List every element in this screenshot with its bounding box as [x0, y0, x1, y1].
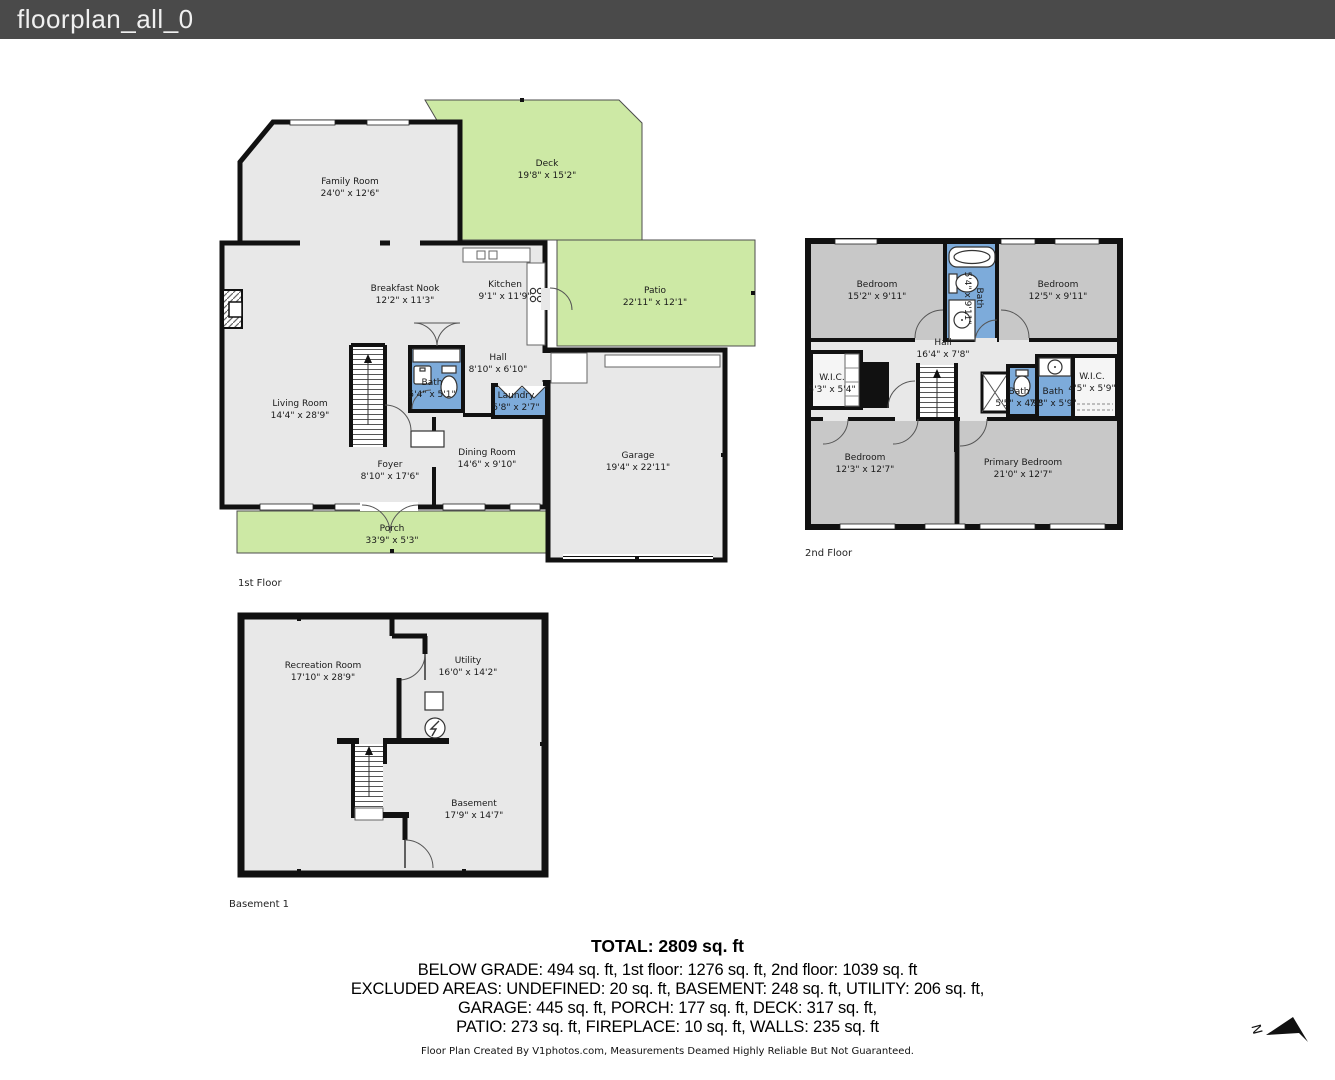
room-label-breakfast-nook: Breakfast Nook12'2" x 11'3" [371, 283, 440, 307]
window [443, 504, 485, 510]
room-label-bedroom-bl: Bedroom12'3" x 12'7" [836, 452, 895, 476]
room-label-utility: Utility16'0" x 14'2" [439, 655, 498, 679]
toilet-icon [1016, 370, 1028, 376]
area-summary: TOTAL: 2809 sq. ft BELOW GRADE: 494 sq. … [0, 936, 1335, 1037]
total-area: TOTAL: 2809 sq. ft [0, 936, 1335, 957]
north-arrow-icon [1235, 1005, 1325, 1065]
floor-caption-basement: Basement 1 [229, 899, 289, 910]
basement-plan [237, 612, 549, 878]
room-label-patio: Patio22'11" x 12'1" [623, 285, 687, 309]
room-label-family-room: Family Room24'0" x 12'6" [321, 176, 380, 200]
summary-line-4: PATIO: 273 sq. ft, FIREPLACE: 10 sq. ft,… [0, 1018, 1335, 1037]
wall-mass [863, 362, 889, 408]
room-label-porch: Porch33'9" x 5'3" [366, 523, 419, 547]
summary-line-2: EXCLUDED AREAS: UNDEFINED: 20 sq. ft, BA… [0, 980, 1335, 999]
electrical-panel-icon [425, 718, 445, 738]
room-label-wic-right: W.I.C.4'5" x 5'9" [1068, 371, 1115, 395]
room-label-recreation-room: Recreation Room17'10" x 28'9" [285, 660, 362, 684]
floor-caption-1st: 1st Floor [238, 578, 282, 589]
toilet-icon [442, 366, 456, 373]
room-label-dining-room: Dining Room14'6" x 9'10" [458, 447, 517, 471]
room-label-bedroom-tl: Bedroom15'2" x 9'11" [848, 279, 907, 303]
summary-line-1: BELOW GRADE: 494 sq. ft, 1st floor: 1276… [0, 961, 1335, 980]
disclaimer-text: Floor Plan Created By V1photos.com, Meas… [0, 1046, 1335, 1057]
room-label-foyer: Foyer8'10" x 17'6" [361, 459, 420, 483]
window [260, 504, 313, 510]
garage-landing [551, 353, 587, 383]
vanity [413, 349, 460, 362]
summary-line-3: GARAGE: 445 sq. ft, PORCH: 177 sq. ft, D… [0, 999, 1335, 1018]
room-label-basement: Basement17'9" x 14'7" [445, 798, 504, 822]
window [1050, 524, 1105, 529]
electrical-box [425, 692, 443, 710]
floor-caption-2nd: 2nd Floor [805, 548, 852, 559]
room-label-laundry: Laundry5'8" x 2'7" [492, 390, 539, 414]
window [840, 524, 895, 529]
window [290, 120, 335, 125]
room-label-hall-1: Hall8'10" x 6'10" [469, 352, 528, 376]
room-label-deck: Deck19'8" x 15'2" [518, 158, 577, 182]
room-label-bath-center: Bath5'4" x 9'11" [961, 272, 985, 325]
closet [411, 431, 444, 447]
stair-landing [355, 808, 383, 820]
first-floor-plan [215, 95, 765, 565]
title-bar: floorplan_all_0 [0, 0, 1335, 39]
window [510, 504, 540, 510]
room-label-wic-left: W.I.C.5'3" x 5'4" [808, 372, 855, 396]
window [925, 524, 965, 529]
basement-shell [241, 616, 545, 874]
floorplan-viewer: floorplan_all_0 [0, 0, 1335, 1080]
window [835, 239, 877, 244]
room-label-primary-bedroom: Primary Bedroom21'0" x 12'7" [984, 457, 1062, 481]
window [367, 120, 409, 125]
room-label-bath-1: Bath5'4" x 5'1" [408, 377, 455, 401]
window [980, 524, 1035, 529]
room-label-living-room: Living Room14'4" x 28'9" [271, 398, 330, 422]
window [1055, 239, 1099, 244]
window [1001, 239, 1035, 244]
page-title: floorplan_all_0 [17, 4, 194, 35]
room-label-hall-2: Hall16'4" x 7'8" [917, 337, 970, 361]
room-label-bedroom-tr: Bedroom12'5" x 9'11" [1029, 279, 1088, 303]
room-label-garage: Garage19'4" x 22'11" [606, 450, 670, 474]
room-label-kitchen: Kitchen9'1" x 11'9" [479, 279, 532, 303]
garage-shelf [605, 355, 720, 367]
